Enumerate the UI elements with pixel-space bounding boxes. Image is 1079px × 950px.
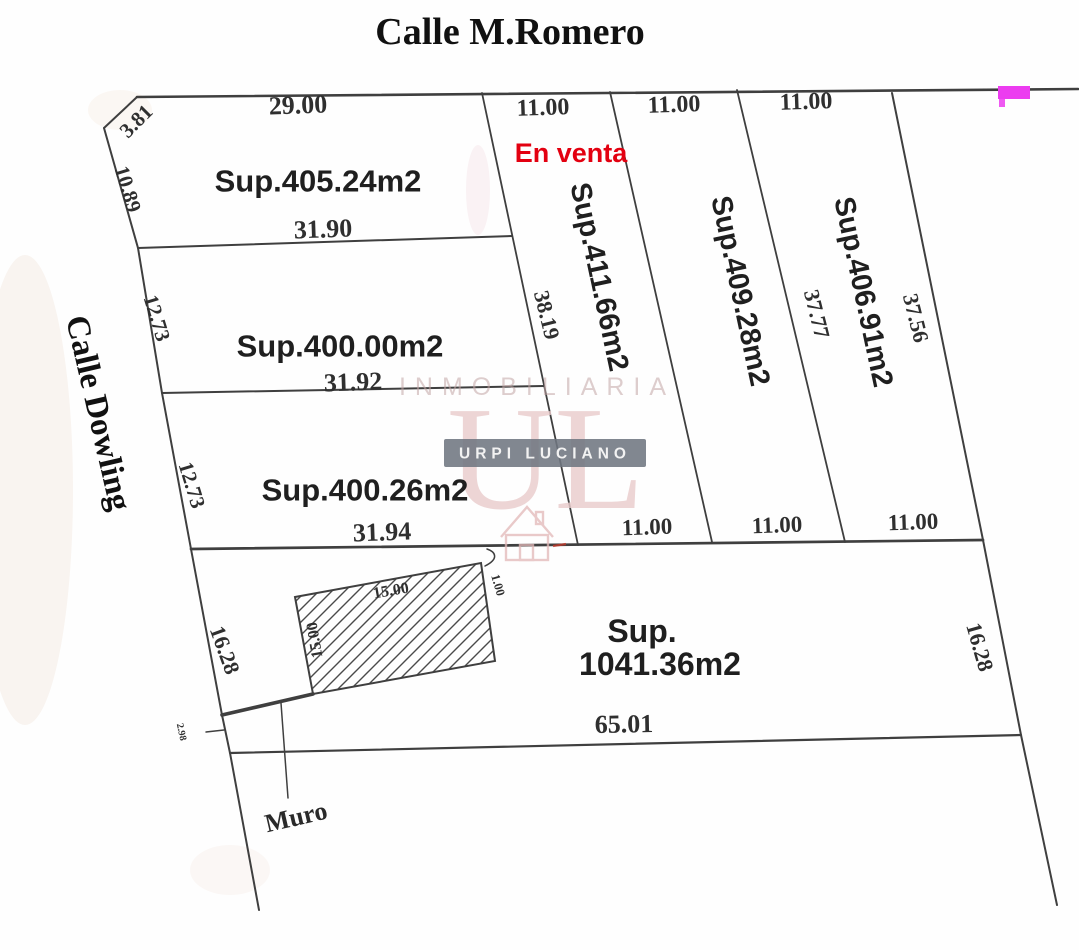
street-title-top: Calle M.Romero: [375, 11, 644, 53]
dim-11-00-mid-a: 11.00: [621, 514, 672, 541]
lot2-area-label: Sup.400.00m2: [237, 329, 444, 364]
dim-65-01: 65.01: [595, 709, 654, 739]
dim-11-00-mid-b: 11.00: [751, 512, 802, 539]
dim-11-00-mid-c: 11.00: [887, 509, 938, 536]
dim-11-00-top-c: 11.00: [779, 88, 833, 116]
dim-31-90: 31.90: [293, 213, 352, 244]
survey-plan-svg: INMOBILIARIA UL URPI LUCIANO Calle M.Rom…: [0, 0, 1079, 950]
dim-11-00-top-b: 11.00: [647, 91, 701, 119]
dim-11-00-top-a: 11.00: [516, 94, 570, 122]
lot1-area-label: Sup.405.24m2: [215, 164, 422, 199]
lot7-area-label-value: 1041.36m2: [579, 646, 741, 682]
lot3-area-label: Sup.400.26m2: [262, 473, 469, 508]
dim-31-92: 31.92: [323, 366, 382, 397]
survey-plan-image: INMOBILIARIA UL URPI LUCIANO Calle M.Rom…: [0, 0, 1079, 950]
lot7-area-label-prefix: Sup.: [607, 613, 676, 649]
dim-29-00: 29.00: [268, 89, 327, 120]
status-en-venta-label: En venta: [515, 138, 629, 168]
dim-31-94: 31.94: [352, 516, 411, 547]
